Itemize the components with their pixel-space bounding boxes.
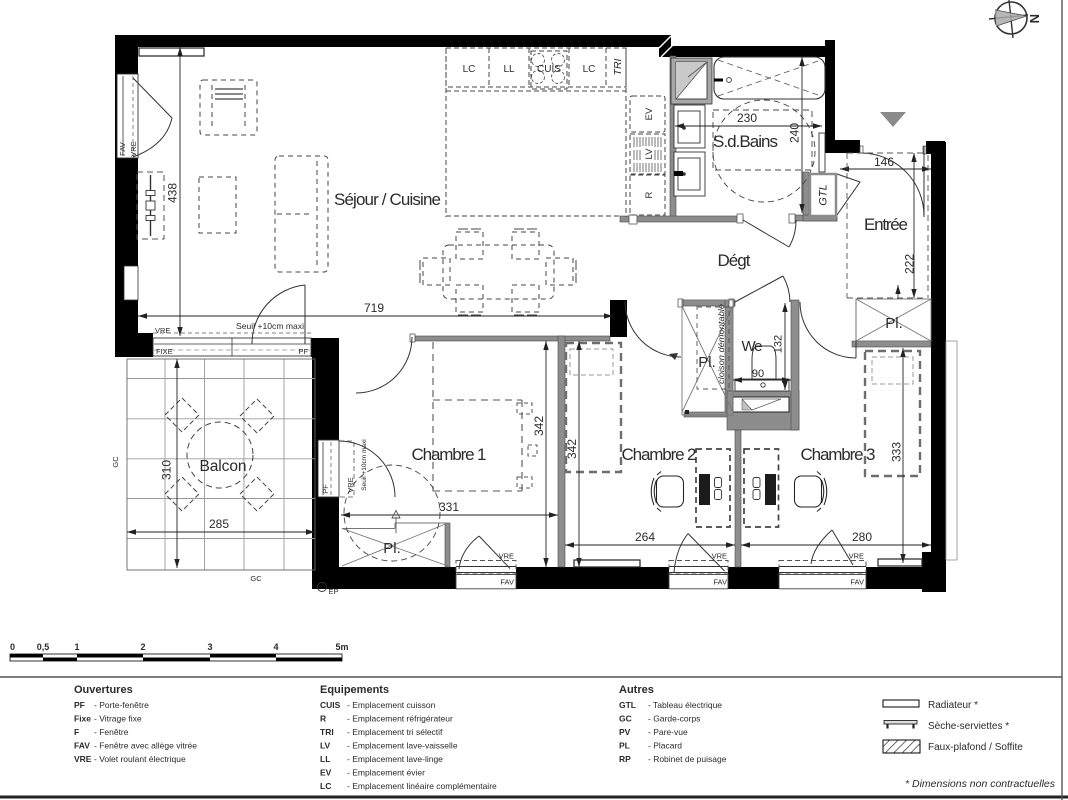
svg-text:FAV: FAV xyxy=(74,741,90,751)
svg-text:2: 2 xyxy=(140,642,145,652)
svg-text:F: F xyxy=(74,727,79,737)
svg-text:TRI: TRI xyxy=(612,58,624,75)
svg-text:FAV: FAV xyxy=(850,578,864,587)
svg-text:- Emplacement cuisson: - Emplacement cuisson xyxy=(347,700,436,710)
svg-text:LV: LV xyxy=(320,741,331,751)
svg-text:LL: LL xyxy=(503,64,515,75)
svg-text:FAV: FAV xyxy=(500,578,514,587)
svg-text:Chambre 2: Chambre 2 xyxy=(622,445,697,464)
svg-text:- Emplacement réfrigérateur: - Emplacement réfrigérateur xyxy=(347,714,453,724)
svg-text:4: 4 xyxy=(273,642,278,652)
svg-text:- Emplacement évier: - Emplacement évier xyxy=(347,768,425,778)
svg-text:N: N xyxy=(1027,14,1042,23)
svg-text:240: 240 xyxy=(788,123,802,143)
svg-text:VRE: VRE xyxy=(346,477,355,492)
svg-text:0,5: 0,5 xyxy=(37,642,50,652)
svg-text:Dégt: Dégt xyxy=(718,251,751,270)
svg-text:Equipements: Equipements xyxy=(320,684,389,696)
svg-text:PF: PF xyxy=(74,700,85,710)
svg-text:GC: GC xyxy=(619,714,632,724)
svg-text:0: 0 xyxy=(10,642,15,652)
svg-text:1: 1 xyxy=(74,642,79,652)
svg-text:342: 342 xyxy=(532,416,546,436)
svg-text:FIXE: FIXE xyxy=(156,347,173,356)
svg-text:LV: LV xyxy=(644,148,655,160)
svg-text:331: 331 xyxy=(439,500,459,514)
svg-text:Sèche-serviettes *: Sèche-serviettes * xyxy=(928,721,1009,732)
svg-text:- Pare-vue: - Pare-vue xyxy=(648,727,688,737)
svg-text:- Vitrage fixe: - Vitrage fixe xyxy=(94,714,142,724)
svg-text:PF: PF xyxy=(298,347,308,356)
svg-text:PV: PV xyxy=(619,727,631,737)
svg-text:280: 280 xyxy=(852,530,872,544)
svg-text:- Emplacement lave-linge: - Emplacement lave-linge xyxy=(347,754,443,764)
svg-text:- Volet roulant électrique: - Volet roulant électrique xyxy=(94,754,186,764)
svg-text:LC: LC xyxy=(583,64,596,75)
svg-text:Séjour / Cuisine: Séjour / Cuisine xyxy=(334,190,441,209)
svg-text:285: 285 xyxy=(209,517,229,531)
svg-text:VRE: VRE xyxy=(155,326,170,335)
svg-text:- Garde-corps: - Garde-corps xyxy=(648,714,700,724)
svg-text:EV: EV xyxy=(320,768,332,778)
svg-text:Seuil +10cm maxi: Seuil +10cm maxi xyxy=(361,439,368,490)
svg-text:90: 90 xyxy=(752,368,764,380)
svg-text:- Emplacement lave-vaisselle: - Emplacement lave-vaisselle xyxy=(347,741,458,751)
svg-text:Ouvertures: Ouvertures xyxy=(74,684,133,696)
svg-text:- Robinet de puisage: - Robinet de puisage xyxy=(648,754,727,764)
svg-text:Seuil +10cm maxi: Seuil +10cm maxi xyxy=(236,321,304,331)
svg-text:CUIS: CUIS xyxy=(537,64,561,75)
svg-text:FAV: FAV xyxy=(713,578,727,587)
svg-text:Autres: Autres xyxy=(619,684,654,696)
svg-text:cloison démontable: cloison démontable xyxy=(716,304,726,384)
svg-text:R: R xyxy=(320,714,326,724)
svg-text:EP: EP xyxy=(329,587,339,596)
svg-text:- Emplacement linéaire complém: - Emplacement linéaire complémentaire xyxy=(347,781,497,791)
svg-text:264: 264 xyxy=(635,530,655,544)
svg-text:LL: LL xyxy=(320,754,330,764)
svg-text:EV: EV xyxy=(644,107,655,120)
svg-text:RP: RP xyxy=(619,754,631,764)
svg-text:438: 438 xyxy=(166,183,180,203)
svg-text:5m: 5m xyxy=(335,642,348,652)
svg-text:- Porte-fenêtre: - Porte-fenêtre xyxy=(94,700,149,710)
svg-text:- Tableau électrique: - Tableau électrique xyxy=(648,700,722,710)
svg-text:VRE: VRE xyxy=(499,552,514,561)
svg-text:Pl.: Pl. xyxy=(698,354,716,371)
svg-text:Pl.: Pl. xyxy=(885,315,903,332)
svg-text:VRE: VRE xyxy=(74,754,92,764)
svg-text:GTL: GTL xyxy=(619,700,636,710)
svg-text:333: 333 xyxy=(890,442,904,462)
svg-text:719: 719 xyxy=(364,301,384,315)
svg-text:- Placard: - Placard xyxy=(648,741,682,751)
svg-text:Faux-plafond / Soffite: Faux-plafond / Soffite xyxy=(928,742,1023,753)
svg-text:S.d.Bains: S.d.Bains xyxy=(713,132,778,151)
svg-text:Balcon: Balcon xyxy=(200,458,247,475)
svg-text:- Emplacement tri sélectif: - Emplacement tri sélectif xyxy=(347,727,443,737)
svg-text:132: 132 xyxy=(773,335,785,353)
svg-text:GC: GC xyxy=(250,574,262,583)
svg-text:* Dimensions non contractuelle: * Dimensions non contractuelles xyxy=(905,778,1056,790)
svg-text:We: We xyxy=(742,338,763,355)
svg-text:CUIS: CUIS xyxy=(320,700,341,710)
svg-text:VRE: VRE xyxy=(712,552,727,561)
svg-text:Radiateur *: Radiateur * xyxy=(928,700,978,711)
svg-text:- Fenêtre avec allège vitrée: - Fenêtre avec allège vitrée xyxy=(94,741,197,751)
svg-text:Pl.: Pl. xyxy=(383,540,401,557)
svg-text:342: 342 xyxy=(565,439,579,459)
svg-text:146: 146 xyxy=(874,155,894,169)
svg-text:Entrée: Entrée xyxy=(864,215,908,234)
svg-text:Fixe: Fixe xyxy=(74,714,91,724)
svg-text:GTL: GTL xyxy=(818,184,830,205)
svg-text:PF: PF xyxy=(321,484,330,494)
svg-text:310: 310 xyxy=(160,460,174,480)
svg-text:3: 3 xyxy=(207,642,212,652)
svg-text:GC: GC xyxy=(111,456,120,468)
svg-text:VRE: VRE xyxy=(129,141,138,156)
svg-text:TRI: TRI xyxy=(320,727,334,737)
svg-text:LC: LC xyxy=(320,781,331,791)
svg-text:230: 230 xyxy=(737,111,757,125)
svg-text:LC: LC xyxy=(463,64,476,75)
svg-text:FAV: FAV xyxy=(118,142,127,156)
svg-text:R: R xyxy=(644,191,655,198)
svg-text:Chambre 3: Chambre 3 xyxy=(801,445,876,464)
svg-text:222: 222 xyxy=(903,254,917,274)
svg-text:- Fenêtre: - Fenêtre xyxy=(94,727,129,737)
svg-text:VRE: VRE xyxy=(849,552,864,561)
svg-text:Chambre 1: Chambre 1 xyxy=(412,445,487,464)
svg-text:PL: PL xyxy=(619,741,630,751)
